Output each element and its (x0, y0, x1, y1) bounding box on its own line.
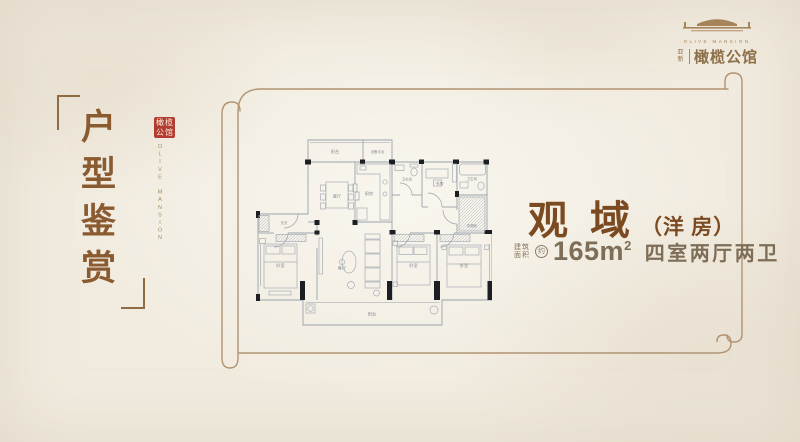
area-prefix-line2: 面积 (514, 252, 530, 260)
brochure-page: OLIVE MANSION 亚新 橄榄公馆 户型鉴赏 橄榄公馆 OLIVE MA… (0, 0, 800, 442)
label-entry: 玄关 (281, 220, 288, 225)
room-configuration: 四室两厅两卫 (645, 237, 780, 266)
title-bracket-bottom (121, 278, 145, 309)
label-balcony-top: 阳台 (331, 148, 339, 155)
approx-circle: 约 (535, 245, 548, 258)
floor-plan: 阳台 设备平台 餐厅 厨房 卫生间 书房 卫生间 衣帽间 玄关 卧室 客厅 卧室… (256, 136, 492, 330)
label-dining: 餐厅 (333, 193, 341, 200)
unit-spec-row: 建筑 面积 约 165m2 四室两厅两卫 (514, 236, 780, 267)
label-cloakroom: 衣帽间 (467, 223, 478, 228)
area-sup: 2 (624, 238, 632, 253)
area-value: 165m2 (553, 236, 632, 267)
label-bedroom-left: 卧室 (276, 262, 284, 269)
red-seal-stamp: 橄榄公馆 (154, 117, 175, 138)
area-prefix-line1: 建筑 (514, 244, 530, 252)
seal-en-vertical: OLIVE MANSION (157, 144, 163, 243)
label-bath-top: 卫生间 (402, 177, 413, 182)
pavilion-icon (677, 10, 757, 33)
section-title-vertical: 户型鉴赏 (70, 108, 121, 296)
label-living: 客厅 (338, 265, 346, 272)
label-bedroom-right: 卧室 (460, 262, 468, 269)
label-equipment-platform: 设备平台 (371, 149, 385, 154)
area-number: 165m (553, 236, 624, 266)
brand-logo: OLIVE MANSION 亚新 橄榄公馆 (656, 10, 778, 67)
closet-hatch (259, 197, 485, 242)
label-kitchen: 厨房 (365, 190, 373, 197)
label-balcony-bottom: 阳台 (368, 311, 376, 318)
walls (258, 140, 492, 325)
brand-en-text: OLIVE MANSION (656, 39, 778, 44)
label-study: 书房 (435, 180, 443, 187)
label-bedroom-mid: 卧室 (409, 262, 417, 269)
label-bath-right: 卫生间 (467, 176, 478, 181)
area-prefix: 建筑 面积 (514, 244, 530, 259)
